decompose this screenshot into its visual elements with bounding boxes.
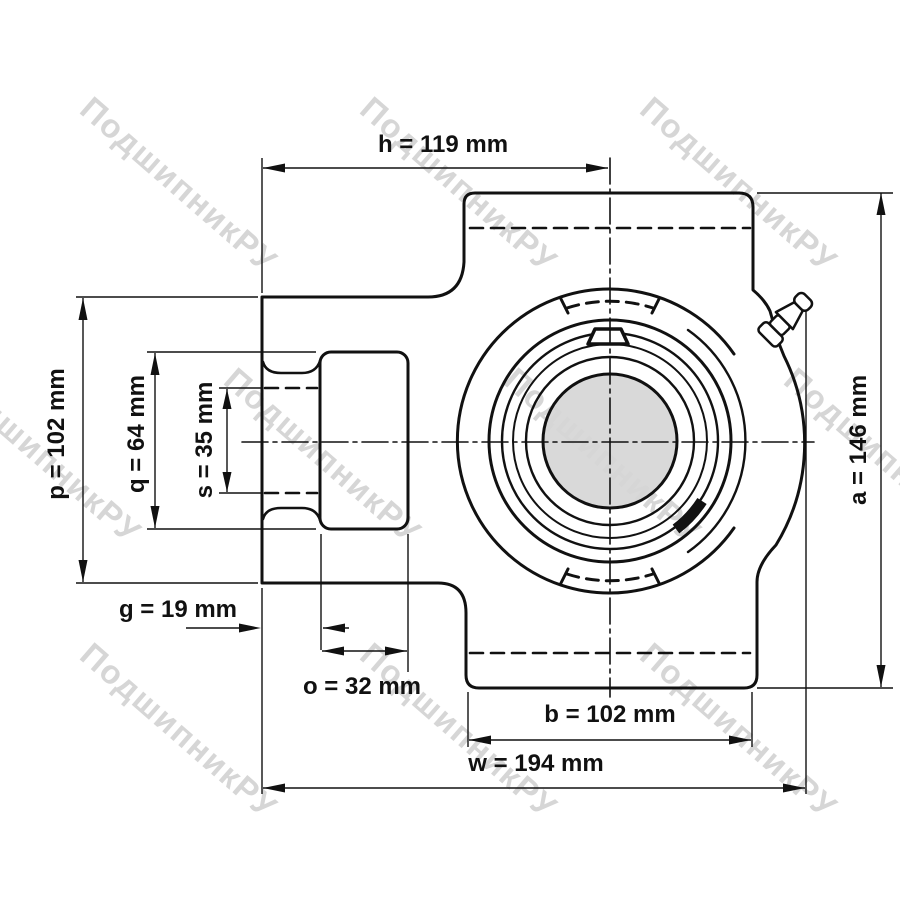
arc-tick [561,299,568,313]
dim-label-o: o = 32 mm [303,673,421,700]
watermark: ПодшипникРУ [633,635,844,825]
arrowhead [223,472,232,492]
dimension-o [322,534,408,672]
set-screw [588,329,628,344]
arrowhead [323,624,345,633]
dim-label-s: s = 35 mm [191,382,218,499]
arc-tick [561,569,568,583]
watermark: ПодшипникРУ [73,89,284,279]
dimension-g [186,534,349,650]
drawing-canvas: ПодшипникРУ ПодшипникРУ ПодшипникРУ Подш… [0,0,900,900]
bearing-drawing: ПодшипникРУ ПодшипникРУ ПодшипникРУ Подш… [0,0,900,900]
arrowhead [79,560,88,582]
watermark: ПодшипникРУ [73,635,284,825]
arrowhead [322,647,344,656]
arrowhead [877,193,886,215]
arrowhead [151,506,160,528]
arc-tick [652,299,659,313]
dim-line [186,534,349,650]
grease-fitting [757,288,817,348]
dim-label-w: w = 194 mm [467,750,603,777]
arc-tick [652,569,659,583]
watermark: ПодшипникРУ [633,89,844,279]
dim-label-g: g = 19 mm [119,596,237,623]
watermark: ПодшипникРУ [353,89,564,279]
dim-label-b: b = 102 mm [544,701,675,728]
slot-edge-top [263,361,320,373]
watermark: ПодшипникРУ [217,360,428,550]
arrowhead [151,353,160,375]
arrowhead [877,665,886,687]
dimension-p [76,297,258,583]
arrowhead [263,164,285,173]
dim-label-p: p = 102 mm [43,368,70,499]
dim-label-h: h = 119 mm [378,131,508,158]
arrowhead [79,298,88,320]
dim-line [76,297,258,583]
arrowhead [239,624,261,633]
slot-edge-bottom [263,508,320,520]
dim-label-q: q = 64 mm [123,375,150,493]
arrowhead [586,164,608,173]
watermark: ПодшипникРУ [353,635,564,825]
dim-label-a: a = 146 mm [845,375,872,505]
